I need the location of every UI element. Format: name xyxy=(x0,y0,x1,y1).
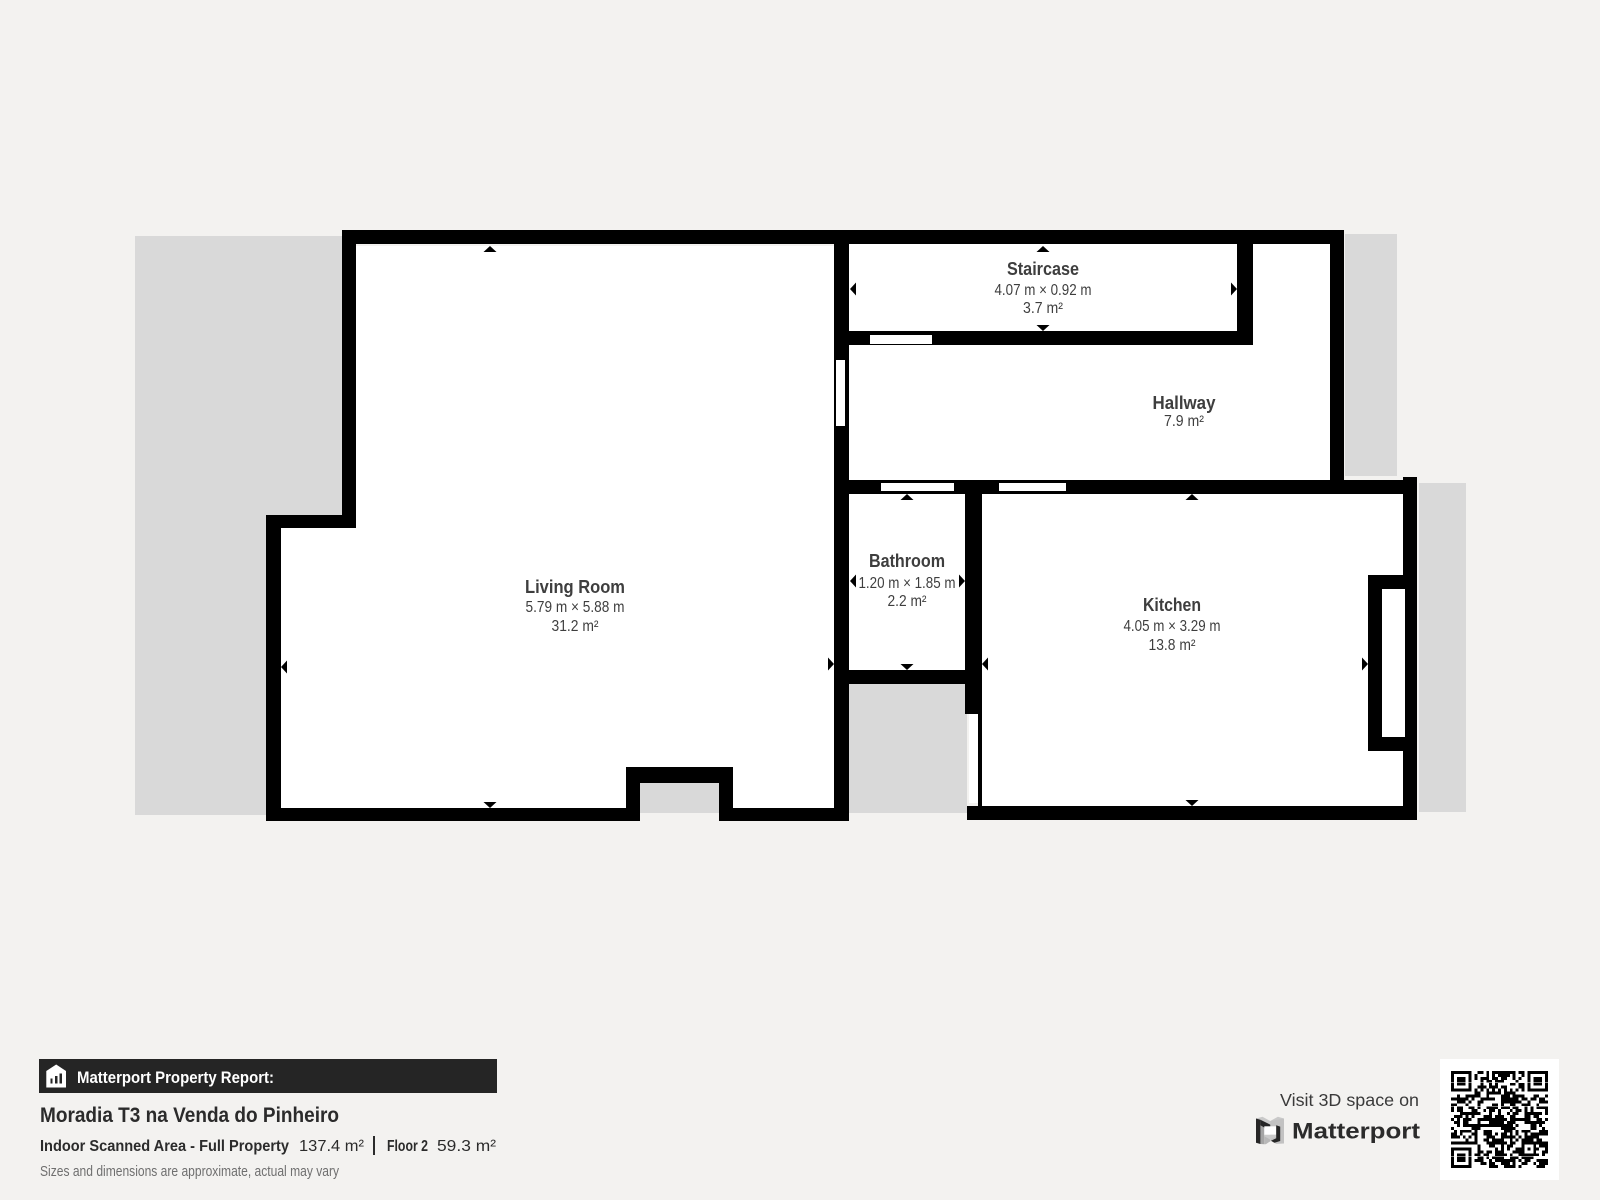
svg-text:137.4 m²: 137.4 m² xyxy=(299,1138,365,1155)
svg-text:Matterport: Matterport xyxy=(1292,1119,1421,1144)
svg-text:Sizes and dimensions are appro: Sizes and dimensions are approximate, ac… xyxy=(40,1164,340,1180)
svg-text:4.07 m × 0.92 m: 4.07 m × 0.92 m xyxy=(995,282,1092,299)
svg-text:Floor 2: Floor 2 xyxy=(387,1138,428,1155)
svg-text:1.20 m × 1.85 m: 1.20 m × 1.85 m xyxy=(859,575,956,592)
svg-text:Moradia T3 na Venda do Pinheir: Moradia T3 na Venda do Pinheiro xyxy=(40,1103,339,1127)
svg-text:Matterport Property Report:: Matterport Property Report: xyxy=(77,1068,274,1087)
svg-text:31.2 m²: 31.2 m² xyxy=(552,618,599,635)
svg-text:4.05 m × 3.29 m: 4.05 m × 3.29 m xyxy=(1124,618,1221,635)
svg-text:59.3 m²: 59.3 m² xyxy=(437,1138,497,1155)
svg-text:7.9 m²: 7.9 m² xyxy=(1164,413,1204,430)
svg-text:5.79 m × 5.88 m: 5.79 m × 5.88 m xyxy=(526,599,625,616)
svg-text:Indoor Scanned Area - Full Pro: Indoor Scanned Area - Full Property xyxy=(40,1138,289,1155)
svg-text:3.7 m²: 3.7 m² xyxy=(1023,300,1063,317)
svg-text:Visit 3D space on: Visit 3D space on xyxy=(1280,1090,1419,1110)
svg-text:Living Room: Living Room xyxy=(525,577,625,597)
svg-text:2.2 m²: 2.2 m² xyxy=(888,593,927,610)
svg-text:Bathroom: Bathroom xyxy=(869,551,945,571)
svg-text:Hallway: Hallway xyxy=(1153,393,1216,413)
svg-text:Kitchen: Kitchen xyxy=(1143,595,1201,615)
svg-text:Staircase: Staircase xyxy=(1007,259,1079,279)
svg-text:13.8 m²: 13.8 m² xyxy=(1149,637,1196,654)
